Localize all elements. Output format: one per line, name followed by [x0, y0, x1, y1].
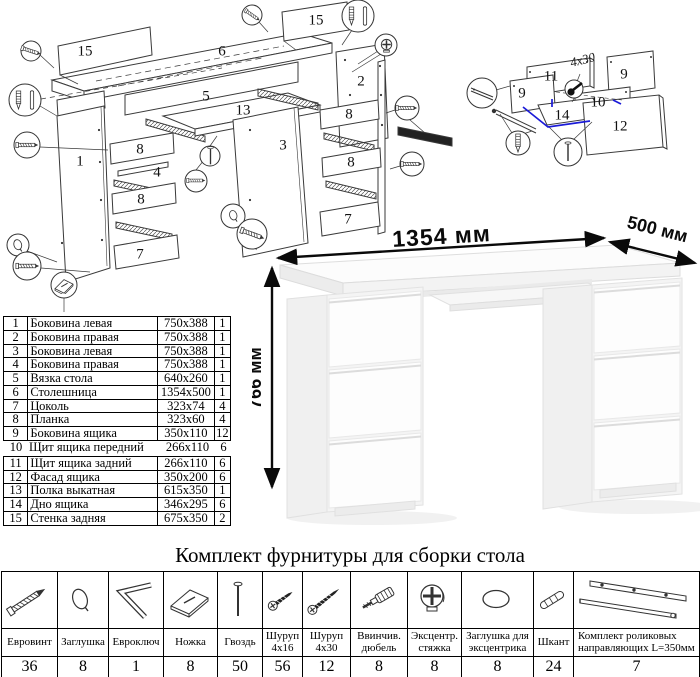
part-name: Боковина ящика: [28, 427, 158, 441]
part-size: 346x295: [158, 498, 215, 512]
hardware-qty: 8: [351, 657, 408, 677]
part-number: 9: [4, 427, 28, 441]
part-number-label: 1: [76, 154, 84, 171]
depth-dimension-label: 500 мм: [625, 215, 690, 246]
drawer-exploded-art: [440, 0, 700, 215]
parts-table-row: 9 Боковина ящика 350x110 12: [4, 427, 231, 441]
part-number: 2: [4, 330, 28, 344]
part-name: Щит ящика передний: [29, 441, 159, 455]
screw-icon: [401, 162, 422, 167]
drawer-exploded-diagram: 4x30 1199101412: [440, 0, 700, 215]
part-number-label: 6: [218, 44, 226, 61]
pin-icon: [363, 7, 366, 25]
part-number: 1: [4, 317, 28, 331]
part-number: 11: [4, 456, 28, 470]
part-number-label: 9: [620, 67, 628, 84]
part-name: Столешница: [28, 385, 158, 399]
part-number-label: 7: [136, 247, 144, 264]
hardware-qty: 1: [109, 657, 164, 677]
screw-icon: [396, 106, 417, 111]
hardware-qty: 7: [574, 657, 700, 677]
hardware-label: Ввинчив. дюбель: [351, 629, 408, 657]
part-qty: 1: [214, 317, 230, 331]
parts-table-row: 15 Стенка задняя 675x350 2: [4, 511, 231, 525]
foot-icon: [164, 575, 214, 625]
parts-table-row: 11 Щит ящика задний 266x110 6: [4, 456, 231, 470]
hardware-label: Комплект роликовых направляющих L=350мм: [574, 629, 700, 657]
part-name: Цоколь: [28, 399, 158, 413]
part-size: 750x388: [158, 344, 215, 358]
part-number: 5: [4, 372, 28, 386]
hardware-kit-table: Евровинт Заглушка Евроключ Ножка Гвоздь …: [1, 571, 700, 677]
hardware-table: Евровинт Заглушка Евроключ Ножка Гвоздь …: [1, 571, 700, 677]
parts-table-row: 14 Дно ящика 346x295 6: [4, 498, 231, 512]
parts-table-row: 6 Столешница 1354x500 1: [4, 385, 231, 399]
part-number-label: 15: [309, 13, 324, 30]
part-qty: 6: [214, 470, 230, 484]
part-number: 13: [4, 484, 28, 498]
part-size: 350x110: [158, 427, 215, 441]
hardware-label: Шуруп 4x16: [263, 629, 303, 657]
hardware-qty: 56: [263, 657, 303, 677]
part-qty: 1: [214, 330, 230, 344]
part-qty: 1: [214, 372, 230, 386]
hardware-qty: 8: [58, 657, 109, 677]
screw-in-dowel-icon: [351, 575, 404, 625]
hardware-qty: 12: [303, 657, 351, 677]
parts-table-row: 8 Планка 323x60 4: [4, 413, 231, 427]
screw-4x30-callout: [565, 80, 583, 98]
hardware-qty: 8: [462, 657, 534, 677]
part-number-label: 3: [279, 138, 287, 155]
hardware-label: Шуруп 4x30: [303, 629, 351, 657]
hardware-label: Шкант: [534, 629, 574, 657]
hardware-kit-title: Комплект фурнитуры для сборки стола: [0, 543, 700, 568]
parts-table-row: 2 Боковина правая 750x388 1: [4, 330, 231, 344]
screw-4x16-icon: [263, 575, 299, 625]
drawer-slides-icon: [574, 575, 694, 625]
wooden-dowel-icon: [534, 575, 570, 625]
screw-icon: [16, 263, 39, 268]
hardware-label: Ножка: [164, 629, 218, 657]
part-number-label: 8: [137, 192, 145, 209]
part-qty: 2: [214, 511, 230, 525]
height-dimension-label: 766 мм: [252, 347, 265, 409]
part-number: 15: [4, 511, 28, 525]
confirmat-icon: [16, 142, 38, 147]
parts-table-row: 10 Щит ящика передний 266x110 6: [3, 441, 231, 456]
part-qty: 1: [214, 385, 230, 399]
part-number: 8: [4, 413, 28, 427]
part-size: 323x74: [158, 399, 215, 413]
parts-table-row: 13 Полка выкатная 615x350 1: [4, 484, 231, 498]
part-number: 10: [3, 441, 29, 455]
part-size: 266x110: [158, 456, 215, 470]
screw-icon: [187, 178, 206, 182]
part-size: 750x388: [158, 317, 215, 331]
part-size: 750x388: [158, 330, 215, 344]
parts-table-row: 4 Боковина правая 750x388 1: [4, 358, 231, 372]
part-number: 4: [4, 358, 28, 372]
part-size: 640x260: [158, 372, 215, 386]
part-qty: 4: [214, 399, 230, 413]
part-number: 3: [4, 344, 28, 358]
part-qty: 4: [214, 413, 230, 427]
part-number-label: 14: [555, 108, 570, 125]
part-qty: 6: [214, 498, 230, 512]
parts-list: 1 Боковина левая 750x388 1 2 Боковина пр…: [3, 316, 231, 526]
hardware-label: Евровинт: [2, 629, 58, 657]
part-name: Вязка стола: [28, 372, 158, 386]
part-qty: 1: [214, 358, 230, 372]
main-exploded-art: [0, 0, 460, 315]
nail-icon: [218, 575, 259, 625]
part-name: Боковина правая: [28, 330, 158, 344]
parts-table-row: 5 Вязка стола 640x260 1: [4, 372, 231, 386]
part-number-label: 8: [347, 155, 355, 172]
part-size: 323x60: [158, 413, 215, 427]
part-name: Боковина правая: [28, 358, 158, 372]
part-number-label: 11: [544, 69, 558, 86]
hardware-qty: 8: [164, 657, 218, 677]
part-name: Фасад ящика: [28, 470, 158, 484]
part-size: 615x350: [158, 484, 215, 498]
cam-lock-icon: [408, 575, 458, 625]
part-number-label: 10: [591, 95, 606, 112]
part-qty: 6: [214, 456, 230, 470]
hardware-label: Эксцентр. стяжка: [408, 629, 462, 657]
part-number-label: 9: [518, 86, 526, 103]
part-name: Дно ящика: [28, 498, 158, 512]
part-size: 750x388: [158, 358, 215, 372]
hardware-label: Гвоздь: [218, 629, 263, 657]
part-size: 1354x500: [158, 385, 215, 399]
part-number-label: 8: [345, 107, 353, 124]
part-name: Стенка задняя: [28, 511, 158, 525]
part-number-label: 8: [136, 142, 144, 159]
part-number-label: 15: [78, 44, 93, 61]
part-number-label: 13: [236, 103, 251, 120]
part-number-label: 2: [357, 74, 365, 91]
part-number-label: 7: [344, 212, 352, 229]
assembly-instruction-sheet: 156155131848732887: [0, 0, 700, 677]
part-number: 6: [4, 385, 28, 399]
hardware-qty: 36: [2, 657, 58, 677]
parts-table-row: 12 Фасад ящика 350x200 6: [4, 470, 231, 484]
hardware-label: Заглушка: [58, 629, 109, 657]
hardware-labels-row: Евровинт Заглушка Евроключ Ножка Гвоздь …: [2, 629, 700, 657]
part-name: Боковина левая: [28, 317, 158, 331]
part-qty: 6: [216, 441, 231, 455]
part-size: 675x350: [158, 511, 215, 525]
parts-table-lower: 11 Щит ящика задний 266x110 6 12 Фасад я…: [3, 456, 231, 526]
pin-icon: [30, 91, 33, 109]
hardware-quantities-row: 36 8 1 8 50 56 12 8 8 8 24 7: [2, 657, 700, 677]
main-exploded-diagram: 156155131848732887: [0, 0, 460, 315]
part-size: 266x110: [159, 441, 216, 455]
hardware-label: Заглушка для эксцентрика: [462, 629, 534, 657]
cap-plug-icon: [58, 575, 105, 625]
parts-table-row: 7 Цоколь 323x74 4: [4, 399, 231, 413]
hardware-qty: 50: [218, 657, 263, 677]
part-qty: 1: [214, 484, 230, 498]
part-name: Планка: [28, 413, 158, 427]
part-name: Боковина левая: [28, 344, 158, 358]
parts-table-upper: 1 Боковина левая 750x388 1 2 Боковина пр…: [3, 316, 231, 441]
part-number-label: 5: [202, 89, 210, 106]
part-qty: 12: [214, 427, 230, 441]
part-size: 350x200: [158, 470, 215, 484]
part-number: 7: [4, 399, 28, 413]
hardware-qty: 24: [534, 657, 574, 677]
part-name: Щит ящика задний: [28, 456, 158, 470]
part-qty: 1: [214, 344, 230, 358]
hardware-qty: 8: [408, 657, 462, 677]
parts-table-row: 1 Боковина левая 750x388 1: [4, 317, 231, 331]
parts-table-row: 3 Боковина левая 750x388 1: [4, 344, 231, 358]
hex-key-icon: [109, 575, 160, 625]
hardware-label: Евроключ: [109, 629, 164, 657]
part-number: 14: [4, 498, 28, 512]
screw-4x30-icon: [303, 575, 347, 625]
part-name: Полка выкатная: [28, 484, 158, 498]
hardware-icons-row: [2, 572, 700, 629]
confirmat-screw-icon: [2, 575, 54, 625]
part-number-label: 4: [153, 165, 161, 182]
cam-cover-icon: [462, 575, 530, 625]
part-number-label: 12: [613, 119, 628, 136]
part-number: 12: [4, 470, 28, 484]
